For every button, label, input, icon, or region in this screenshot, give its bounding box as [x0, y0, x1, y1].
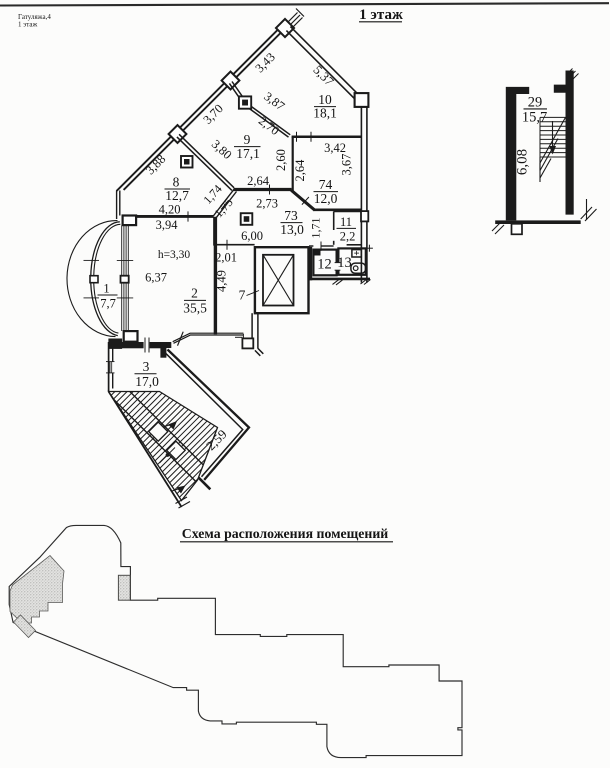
svg-text:2,60: 2,60 [274, 149, 288, 171]
svg-text:13,0: 13,0 [280, 222, 304, 237]
svg-text:11: 11 [340, 215, 352, 229]
svg-text:Схема расположения помещений: Схема расположения помещений [182, 526, 388, 541]
svg-text:2,64: 2,64 [247, 174, 270, 188]
svg-text:3,42: 3,42 [324, 141, 346, 155]
svg-text:3: 3 [143, 359, 150, 374]
svg-text:2,01: 2,01 [215, 250, 237, 264]
svg-text:35,5: 35,5 [183, 301, 207, 316]
svg-text:6,08: 6,08 [515, 149, 531, 175]
svg-text:15,7: 15,7 [522, 109, 547, 125]
svg-text:4,49: 4,49 [215, 270, 229, 292]
svg-text:3,94: 3,94 [156, 218, 179, 232]
svg-text:74: 74 [319, 177, 333, 192]
svg-text:17,1: 17,1 [236, 146, 260, 161]
svg-text:2,64: 2,64 [293, 159, 307, 182]
svg-text:1 этаж: 1 этаж [18, 21, 38, 29]
svg-text:h=3,30: h=3,30 [158, 249, 191, 261]
svg-text:12: 12 [317, 257, 332, 273]
svg-text:18,1: 18,1 [313, 106, 337, 121]
svg-text:1: 1 [103, 282, 109, 296]
svg-text:1,71: 1,71 [309, 218, 323, 239]
svg-text:7,7: 7,7 [100, 297, 116, 311]
svg-text:73: 73 [284, 208, 298, 223]
svg-text:2,73: 2,73 [256, 197, 278, 211]
svg-text:6,00: 6,00 [241, 229, 263, 243]
svg-text:12,7: 12,7 [165, 188, 189, 203]
svg-text:2,2: 2,2 [340, 230, 356, 244]
svg-text:12,0: 12,0 [314, 191, 338, 206]
svg-text:13: 13 [337, 255, 352, 271]
svg-text:29: 29 [528, 94, 543, 110]
svg-text:1 этаж: 1 этаж [359, 7, 403, 23]
svg-text:4,20: 4,20 [159, 203, 181, 217]
svg-text:3,67: 3,67 [340, 154, 354, 176]
svg-text:6,37: 6,37 [145, 271, 167, 285]
svg-text:17,0: 17,0 [135, 374, 159, 389]
svg-text:9: 9 [244, 132, 251, 147]
svg-text:7: 7 [239, 288, 246, 303]
svg-text:2: 2 [191, 286, 198, 301]
